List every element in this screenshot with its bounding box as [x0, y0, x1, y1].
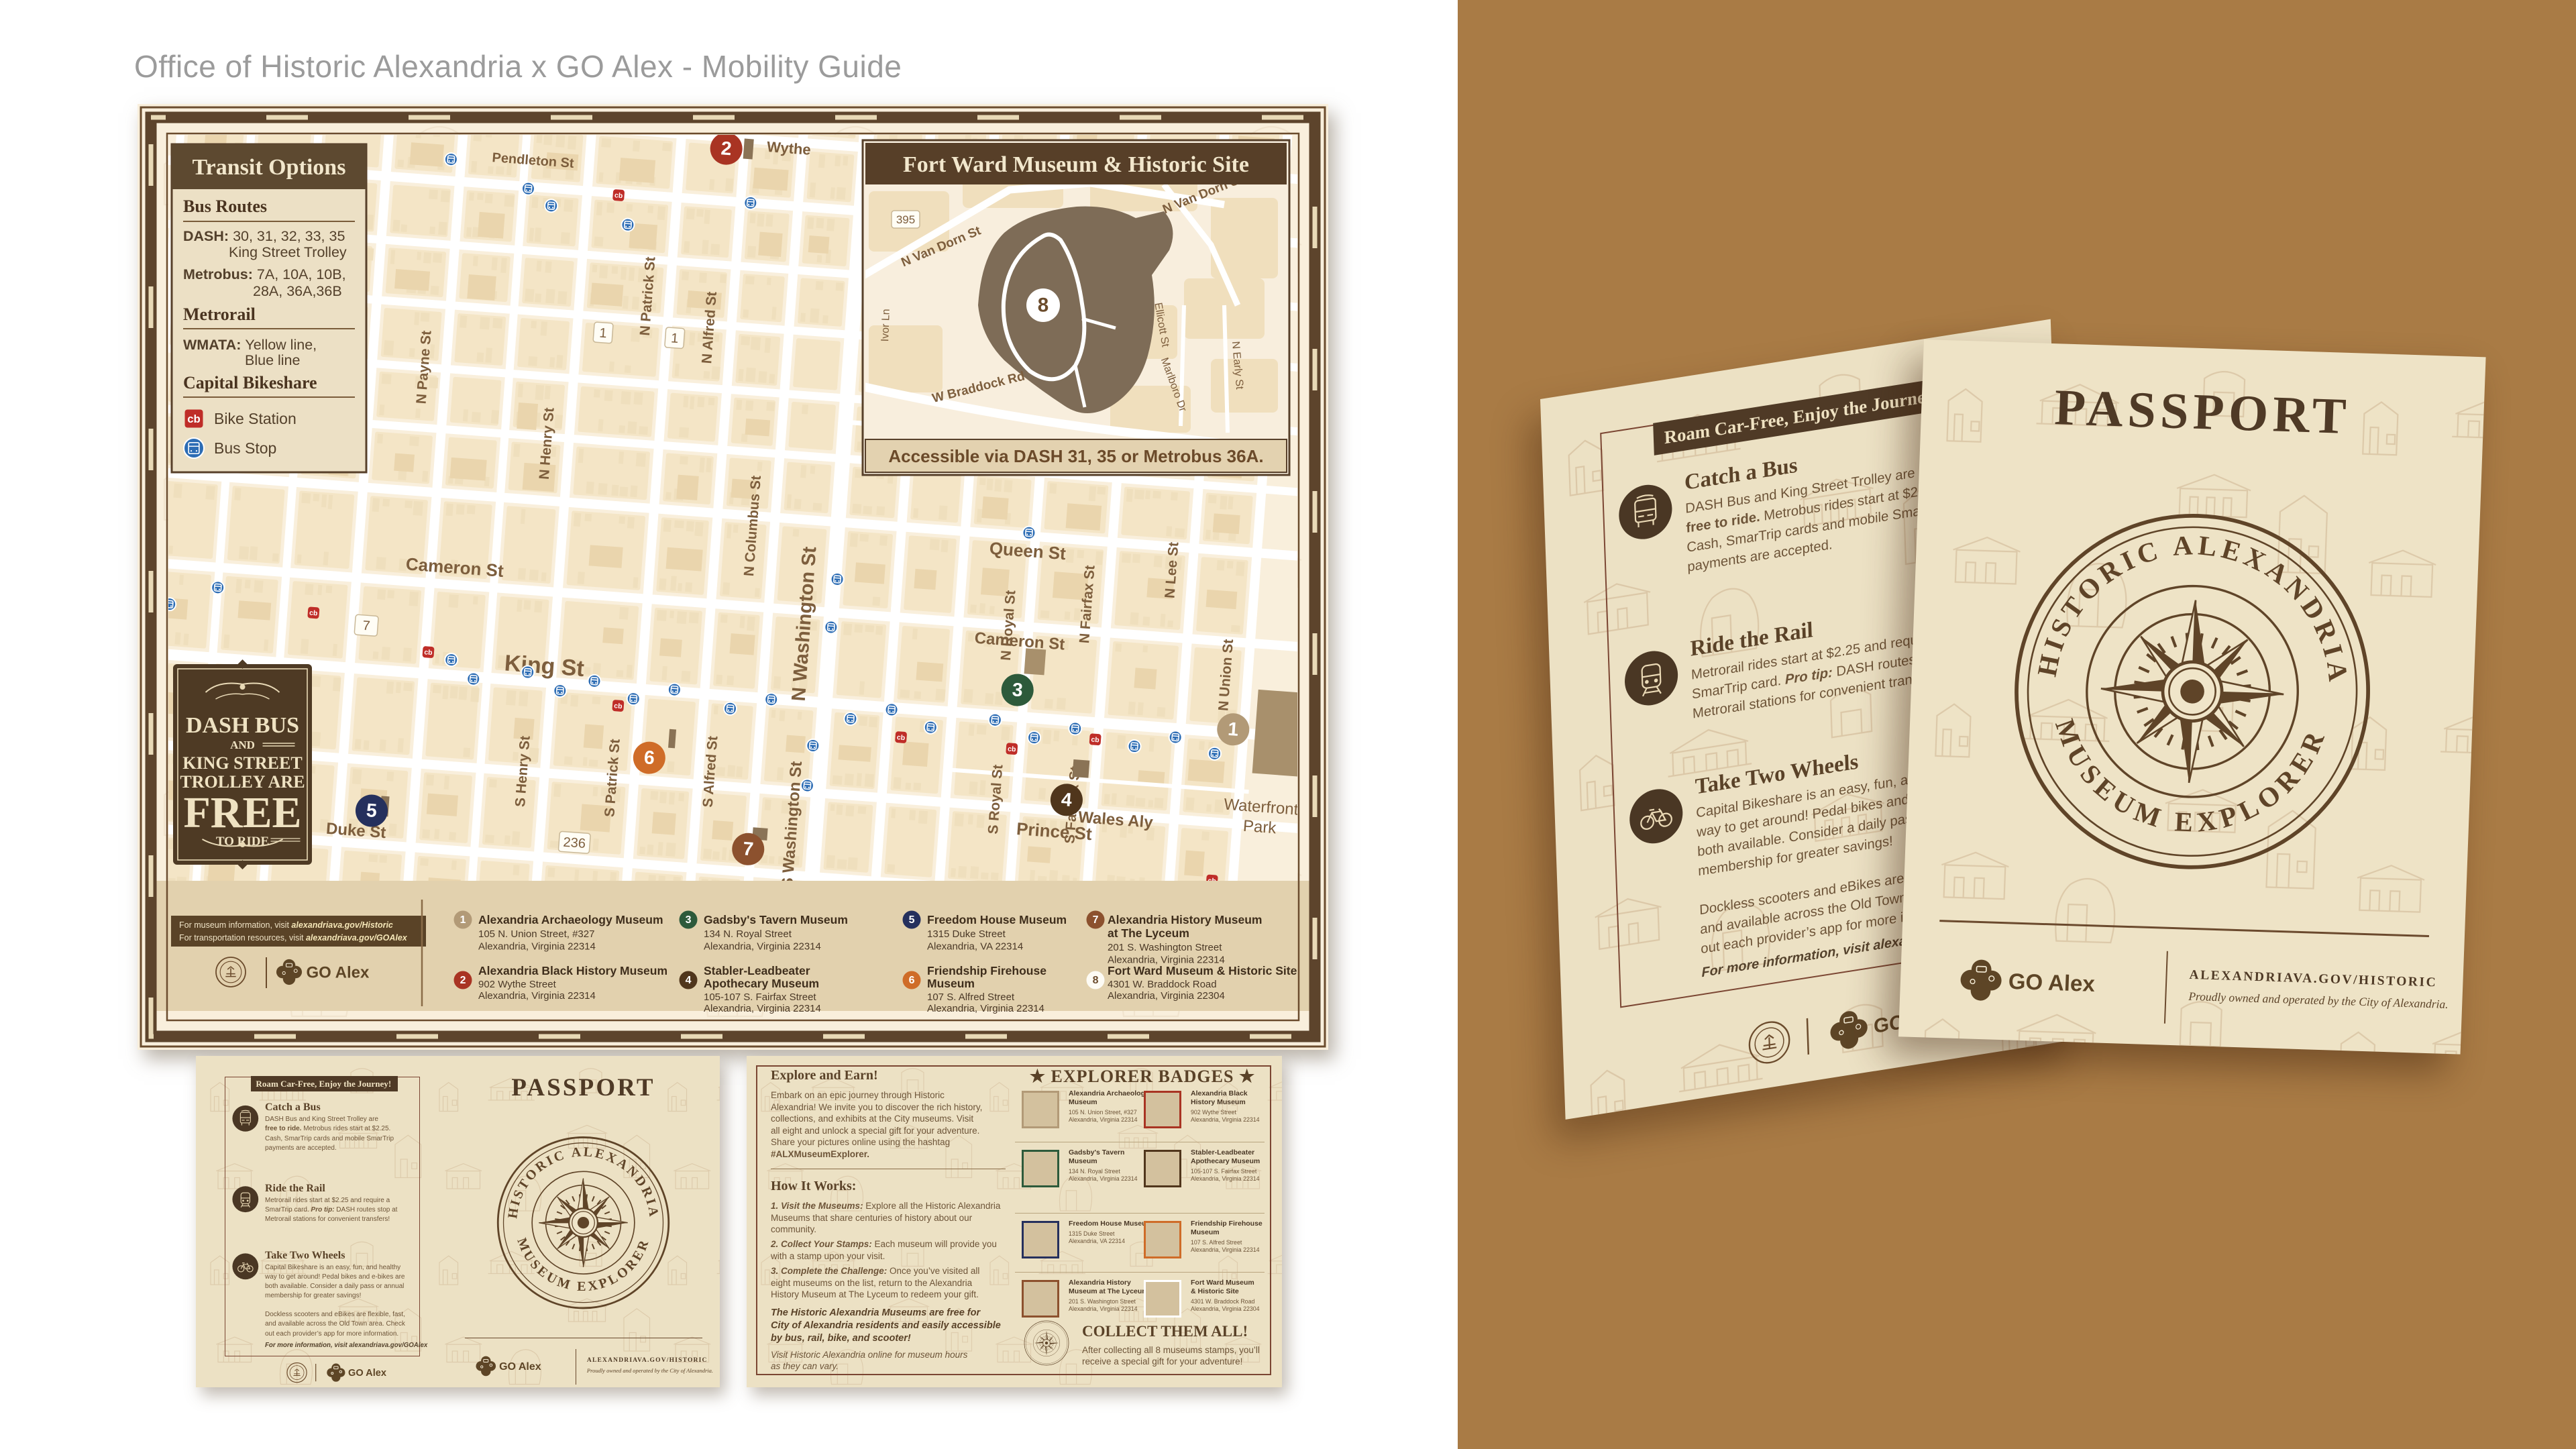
svg-text:8: 8: [1038, 294, 1049, 317]
svg-text:DASH: 30, 31, 32, 33, 35: DASH: 30, 31, 32, 33, 35: [183, 228, 345, 244]
svg-text:Apothecary Museum: Apothecary Museum: [704, 977, 819, 990]
svg-text:Alexandria, Virginia 22314: Alexandria, Virginia 22314: [478, 941, 596, 953]
svg-text:Fort Ward Museum & Historic Si: Fort Ward Museum & Historic Site: [1108, 964, 1297, 977]
svg-text:1: 1: [1227, 718, 1239, 741]
svg-text:Park: Park: [1242, 817, 1277, 838]
svg-text:5: 5: [366, 800, 378, 822]
svg-text:cb: cb: [896, 733, 905, 742]
svg-text:KING STREET: KING STREET: [182, 753, 302, 773]
svg-text:5: 5: [909, 914, 915, 926]
svg-text:4301 W. Braddock Road: 4301 W. Braddock Road: [1108, 979, 1217, 990]
svg-text:7: 7: [362, 619, 371, 634]
svg-text:7: 7: [1093, 914, 1099, 926]
svg-text:Museum: Museum: [927, 977, 975, 990]
svg-text:cb: cb: [1008, 745, 1016, 753]
svg-text:395: 395: [896, 213, 915, 226]
svg-text:8: 8: [1093, 975, 1099, 986]
svg-text:1: 1: [599, 326, 608, 341]
svg-text:Alexandria Archaeology Museum: Alexandria Archaeology Museum: [478, 913, 663, 926]
svg-text:WMATA: Yellow line,: WMATA: Yellow line,: [183, 337, 317, 353]
svg-text:Alexandria, Virginia 22314: Alexandria, Virginia 22314: [704, 941, 821, 953]
svg-text:cb: cb: [614, 702, 623, 710]
svg-text:Friendship Firehouse: Friendship Firehouse: [927, 964, 1046, 977]
svg-text:Alexandria, Virginia 22304: Alexandria, Virginia 22304: [1108, 990, 1225, 1002]
svg-text:cb: cb: [309, 609, 318, 618]
svg-text:For transportation resources,: For transportation resources, visit alex…: [179, 933, 408, 943]
svg-text:1: 1: [670, 331, 679, 346]
svg-text:AND: AND: [230, 739, 255, 751]
svg-text:cb: cb: [424, 648, 433, 657]
svg-text:Accessible via DASH 31, 35 or: Accessible via DASH 31, 35 or Metrobus 3…: [888, 446, 1263, 466]
svg-text:2: 2: [460, 975, 466, 986]
svg-text:cb: cb: [1091, 736, 1099, 745]
svg-text:Freedom House Museum: Freedom House Museum: [927, 913, 1067, 926]
svg-text:3: 3: [1012, 679, 1024, 701]
svg-text:105-107 S. Fairfax Street: 105-107 S. Fairfax Street: [704, 991, 816, 1003]
svg-text:1: 1: [460, 914, 466, 926]
svg-text:134 N. Royal Street: 134 N. Royal Street: [704, 928, 792, 940]
svg-text:GO Alex: GO Alex: [2008, 969, 2096, 996]
svg-text:FREE: FREE: [183, 788, 301, 837]
svg-text:2: 2: [720, 138, 733, 160]
svg-text:Transit Options: Transit Options: [193, 155, 346, 180]
svg-text:7: 7: [742, 838, 754, 860]
svg-text:1315 Duke Street: 1315 Duke Street: [927, 928, 1006, 940]
svg-text:4: 4: [686, 975, 692, 986]
svg-text:3: 3: [686, 914, 692, 926]
svg-text:cb: cb: [614, 191, 623, 200]
svg-text:Gadsby's Tavern Museum: Gadsby's Tavern Museum: [704, 913, 848, 926]
svg-text:Ivor Ln: Ivor Ln: [879, 309, 892, 341]
svg-text:201 S. Washington Street: 201 S. Washington Street: [1108, 942, 1222, 953]
svg-text:Alexandria, Virginia 22314: Alexandria, Virginia 22314: [704, 1003, 821, 1014]
svg-text:28A, 36A,36B: 28A, 36A,36B: [253, 283, 342, 299]
svg-text:Alexandria Black History Museu: Alexandria Black History Museum: [478, 964, 667, 977]
svg-text:at The Lyceum: at The Lyceum: [1108, 926, 1189, 940]
svg-text:Alexandria, Virginia 22314: Alexandria, Virginia 22314: [478, 990, 596, 1002]
svg-text:cb: cb: [187, 413, 201, 425]
svg-text:For museum information, visit: For museum information, visit alexandria…: [179, 920, 393, 930]
svg-text:Bike Station: Bike Station: [214, 410, 297, 427]
svg-text:236: 236: [563, 835, 586, 851]
svg-text:DASH BUS: DASH BUS: [186, 713, 299, 738]
svg-text:GO Alex: GO Alex: [307, 963, 370, 981]
svg-text:Fort Ward Museum & Historic Si: Fort Ward Museum & Historic Site: [903, 152, 1249, 177]
svg-text:King Street Trolley: King Street Trolley: [229, 244, 347, 260]
svg-text:GO Alex: GO Alex: [348, 1368, 386, 1379]
svg-text:Metrorail: Metrorail: [183, 305, 256, 324]
svg-text:Alexandria History Museum: Alexandria History Museum: [1108, 913, 1262, 926]
svg-text:4: 4: [1061, 789, 1073, 811]
svg-text:Stabler-Leadbeater: Stabler-Leadbeater: [704, 964, 810, 977]
svg-text:Capital Bikeshare: Capital Bikeshare: [183, 373, 317, 392]
svg-text:Alexandria, Virginia 22314: Alexandria, Virginia 22314: [927, 1003, 1044, 1014]
svg-text:105 N. Union Street, #327: 105 N. Union Street, #327: [478, 928, 594, 940]
svg-text:6: 6: [643, 747, 655, 769]
svg-text:Wythe: Wythe: [766, 138, 811, 158]
svg-text:902 Wythe Street: 902 Wythe Street: [478, 979, 557, 990]
svg-text:Bus Stop: Bus Stop: [214, 439, 276, 457]
svg-text:6: 6: [909, 975, 915, 986]
svg-text:Bus Routes: Bus Routes: [183, 197, 267, 216]
svg-text:Metrobus: 7A, 10A, 10B,: Metrobus: 7A, 10A, 10B,: [183, 266, 346, 282]
svg-text:Alexandria, VA 22314: Alexandria, VA 22314: [927, 941, 1023, 953]
svg-text:107 S. Alfred Street: 107 S. Alfred Street: [927, 991, 1015, 1003]
svg-text:Blue line: Blue line: [245, 352, 300, 368]
svg-text:GO Alex: GO Alex: [499, 1360, 541, 1373]
